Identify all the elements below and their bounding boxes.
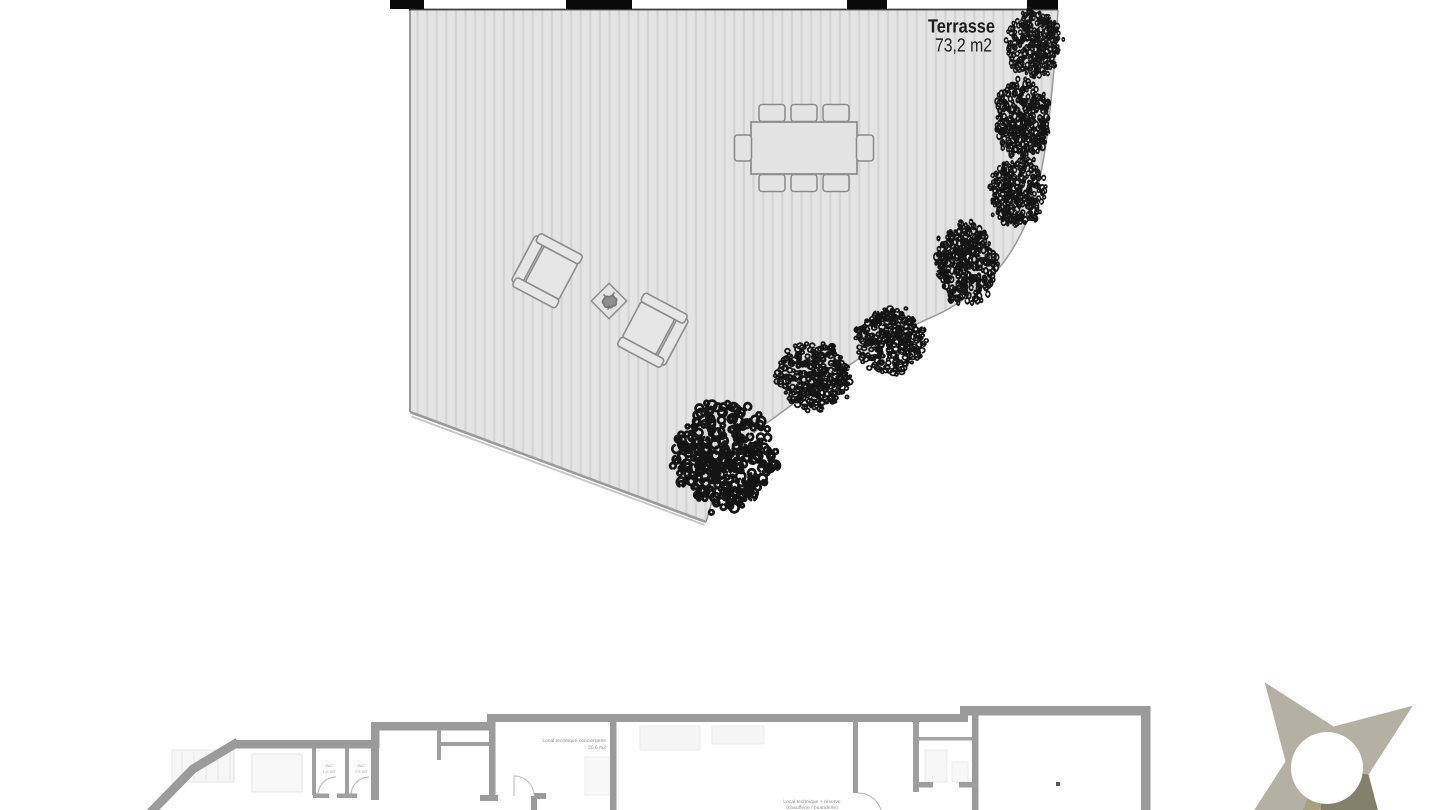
svg-text:2,5 m2: 2,5 m2 xyxy=(355,769,368,774)
svg-text:WC: WC xyxy=(358,763,365,768)
svg-text:1,5 m2: 1,5 m2 xyxy=(323,769,336,774)
svg-text:Local technique conciergerie: Local technique conciergerie xyxy=(542,738,606,744)
svg-text:Terrasse: Terrasse xyxy=(928,17,995,38)
svg-text:WC: WC xyxy=(326,763,333,768)
svg-text:20,6 m2: 20,6 m2 xyxy=(588,745,606,751)
svg-text:(chaufferie / buanderie): (chaufferie / buanderie) xyxy=(786,805,838,810)
svg-text:73,2 m2: 73,2 m2 xyxy=(935,36,992,57)
